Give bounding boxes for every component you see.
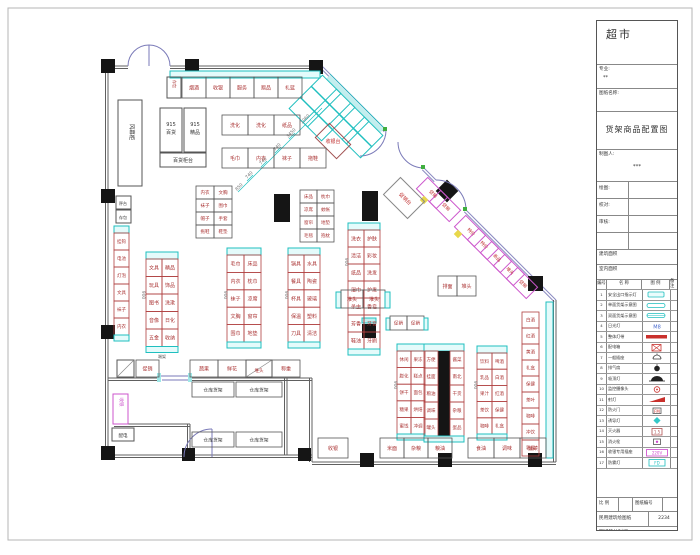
legend-row-name: 防火门	[607, 406, 643, 416]
shelf-cap	[385, 292, 390, 308]
plan-label: 百货	[166, 129, 176, 136]
shelf-label: 冲调	[414, 422, 423, 429]
std-value: 2234	[649, 512, 677, 526]
column	[274, 194, 290, 222]
dim-text: 900	[472, 381, 478, 390]
shelf-label: 食油	[476, 445, 486, 452]
legend-row-symbol	[643, 416, 671, 426]
legend-row-name: 射灯	[607, 395, 643, 405]
legend-row-note	[671, 332, 677, 342]
shelf-label: 南北	[453, 373, 462, 380]
dim-text: 1060	[299, 113, 311, 125]
legend-row-name: 排气扇	[607, 364, 643, 374]
shelf-label: 手套	[219, 215, 228, 222]
svg-text:FD: FD	[654, 461, 659, 466]
shelf-label: 糕点	[414, 373, 423, 380]
column	[101, 446, 115, 460]
shelf-label: 休闲	[400, 356, 409, 363]
major-row: 专业: **	[597, 64, 677, 88]
svg-text:1.5: 1.5	[653, 429, 660, 434]
legend-row: 9吸顶灯	[597, 373, 677, 384]
shelf-label: 仓库货架	[203, 386, 222, 393]
shelf-label: 促销	[394, 320, 403, 327]
shelf-label: 红酒	[526, 333, 535, 340]
legend-row-name: 诱导灯	[607, 416, 643, 426]
door-arc	[128, 45, 149, 66]
legend-row: 15消火栓	[597, 436, 677, 447]
shelf-label: 堆头	[347, 296, 357, 303]
shelf-label: 白酒	[526, 317, 535, 324]
plan-label: 秤台	[119, 200, 127, 206]
shelf-label: 清洁	[351, 252, 361, 259]
shelf-label: 米面	[387, 445, 397, 452]
legend-symbol-ext-icon: 1.5	[644, 427, 670, 436]
legend-symbol-diamond-icon	[644, 416, 670, 425]
shelf-label: 玩具	[149, 283, 159, 289]
shelf-label: 烟酒	[189, 84, 199, 91]
legend-row-no: 2	[597, 301, 607, 311]
shelf-cap	[424, 436, 464, 442]
shelf-label: 饼干	[400, 389, 409, 396]
legend-row-note	[671, 301, 677, 311]
legend-row: 11射灯	[597, 394, 677, 405]
shelf-label: 洗衣	[351, 235, 361, 242]
shelf-label: 黄酒	[526, 349, 535, 356]
shelf-label: 洗发	[367, 269, 377, 276]
legend-row-note	[671, 427, 677, 437]
door-arc	[360, 130, 386, 156]
column	[360, 453, 374, 467]
shelf-label: 洗化	[256, 122, 266, 129]
plan-label: 存包	[119, 214, 127, 220]
legend-row-symbol	[643, 301, 671, 311]
shelf-label: 礼盒	[495, 423, 504, 430]
legend-row-no: 1	[597, 290, 607, 300]
sign-label: 绘图:	[599, 186, 610, 191]
drafter-label: 制图人:	[599, 152, 614, 157]
shelf-label: 窗帘	[304, 219, 313, 226]
shelf-label: 收纳	[165, 335, 175, 342]
plan-label: 百货柜台	[173, 157, 193, 164]
shelf-label: 塑料	[307, 313, 317, 320]
dim-text: 900	[392, 381, 398, 390]
dim-line	[238, 108, 322, 192]
plan-label: 堆头	[255, 367, 264, 374]
shelf-cap	[424, 318, 428, 330]
shelf-label: 纸品	[351, 269, 361, 276]
area-row: 建筑面积	[597, 249, 677, 264]
shelf-label: 白酒	[495, 374, 504, 381]
shelf-label: 果冻	[414, 356, 423, 363]
shelf-cap	[227, 248, 261, 255]
shelf-label: 凉席	[304, 206, 313, 213]
shelf-label: 烘焙	[414, 406, 423, 413]
legend-row-note	[671, 406, 677, 416]
legend-row-symbol: FM	[643, 406, 671, 416]
shelf-label: 灯泡	[117, 272, 126, 279]
legend-row-no: 11	[597, 395, 607, 405]
shelf-label: 蚊帐	[321, 206, 330, 213]
shelf-label: 称重	[281, 365, 291, 372]
shelf-label: 拖鞋	[201, 228, 210, 235]
shelf-cap	[477, 346, 507, 353]
shelf-label: 酱菜	[453, 356, 462, 363]
shelf-label: 餐具	[291, 278, 301, 285]
legend-row: 7一般插座	[597, 352, 677, 363]
shelf-label: 床品	[304, 193, 313, 200]
legend-row-note	[671, 437, 677, 447]
shelf-label: 咖啡	[480, 423, 489, 430]
legend-symbol-shelf2-icon	[644, 311, 670, 320]
legend-row: 8排气扇	[597, 363, 677, 374]
shelf-label: 内衣	[117, 323, 126, 330]
legend-row: 3双面货架示意图	[597, 310, 677, 321]
column	[101, 59, 115, 73]
shelf-label: 饰品	[165, 282, 175, 289]
legend-row: 5整体灯带	[597, 331, 677, 342]
cooler-label: 风幕柜	[128, 124, 136, 141]
shelf-cap	[146, 347, 178, 353]
legend-row-no: 5	[597, 332, 607, 342]
cashier-label: 收银台	[325, 138, 340, 145]
plan-label: 915	[166, 122, 176, 128]
shelf-label: 枕巾	[321, 193, 330, 200]
column-diamond	[436, 180, 459, 203]
yellow-mark	[454, 230, 462, 238]
sign-label: 校对:	[599, 203, 610, 208]
legend-row-name: 双面货架示意图	[607, 311, 643, 321]
legend-row-note	[671, 395, 677, 405]
legend-row-name: 单面货架示意图	[607, 301, 643, 311]
shelf-cap	[397, 344, 425, 351]
shelf-label: 收银	[328, 445, 338, 452]
legend-symbol-fan-icon	[644, 364, 670, 373]
plan-label: 915	[190, 122, 200, 128]
legend-symbol-shelf1-icon	[644, 301, 670, 310]
legend-row-symbol	[643, 385, 671, 395]
std-label: 民用建筑绘图纸	[597, 512, 649, 526]
shelf-label: 文具	[149, 265, 159, 272]
plan-label: 端架	[158, 353, 166, 359]
legend-row-symbol	[643, 374, 671, 384]
shelf-label: 促销	[142, 365, 152, 372]
promo-island-label: 促销台	[397, 191, 413, 207]
shelf-label: 酱菜	[528, 445, 538, 452]
legend-row-symbol	[643, 395, 671, 405]
shelf-label: 服务	[237, 84, 247, 91]
legend-row-no: 10	[597, 385, 607, 395]
shelf-label: 罐头	[427, 424, 436, 431]
shelf-label: 地垫	[247, 330, 257, 337]
shelf-label: 咖啡	[526, 413, 535, 420]
shelf-label: 礼盒	[526, 365, 535, 372]
legend-row-symbol	[643, 290, 671, 300]
legend-row-symbol: 1.5	[643, 427, 671, 437]
legend-row-name: 吸顶灯	[607, 374, 643, 384]
shelf-label: 护肤	[367, 235, 377, 242]
legend-row-symbol	[643, 332, 671, 342]
legend-row-note	[671, 353, 677, 363]
green-mark	[383, 127, 387, 131]
scale-label: 比 例	[597, 498, 619, 511]
shelf-label: 堆头	[461, 283, 471, 290]
shelf-label: 果汁	[480, 390, 489, 397]
column	[528, 453, 542, 467]
shelf-label: 香皂	[367, 303, 377, 310]
shelf-label: 袜子	[282, 155, 292, 162]
legend-header-name: 名 称	[607, 280, 642, 289]
shelf-label: 膨化	[400, 373, 409, 380]
shelf-label: 床品	[247, 261, 257, 268]
plan-label: 精品	[190, 129, 200, 136]
shelf-label: 帽子	[201, 215, 210, 222]
shelf-label: 牙膏	[367, 320, 377, 327]
legend-row: 12防火门FM	[597, 405, 677, 416]
shelf-cap	[386, 318, 390, 330]
door-arc	[398, 142, 424, 168]
shelf-label: 保健	[495, 406, 504, 413]
shelf-label: 杀虫	[351, 303, 361, 310]
store-title: 超市	[606, 29, 632, 64]
legend-row: 10监控摄像头	[597, 384, 677, 395]
shelf-label: 挂面	[427, 373, 436, 380]
legend-symbol-dome-icon	[644, 374, 670, 383]
shelf-label: 乳品	[480, 374, 489, 381]
shelf-label: 袜子	[201, 202, 210, 209]
shelf-label: 音像	[149, 317, 159, 324]
shelf-label: 仓库货架	[203, 436, 222, 443]
legend-symbol-fog-icon: FD	[644, 458, 670, 467]
drafter-value: ***	[597, 164, 677, 170]
shelf-label: 洗漱	[165, 300, 175, 307]
sign-row: 校对:	[597, 198, 677, 215]
shelf-cap	[227, 342, 261, 348]
shelf-cap	[114, 335, 129, 341]
shelf-cap	[424, 344, 464, 351]
shelf-label: 茶饮	[480, 406, 489, 413]
shelf-label: 杯具	[291, 295, 301, 302]
shelf-label: 保温	[291, 313, 301, 320]
legend-row-symbol	[643, 311, 671, 321]
shelf-label: 文胸	[219, 189, 228, 196]
legend-symbol-strip-icon	[644, 332, 670, 341]
plan-label: 配电	[119, 432, 128, 439]
shelf-label: 拖鞋	[308, 155, 318, 162]
shelf-label: 窗帘	[247, 313, 257, 320]
confirm-row-1: 图纸确认时间	[597, 526, 677, 532]
shelf-label: 调味	[427, 407, 436, 414]
shelf-label: 杂粮	[453, 407, 462, 414]
shelf-label: 围巾	[219, 202, 228, 209]
shelf-label: 彩妆	[367, 252, 377, 259]
shelf-cap	[397, 434, 425, 440]
plan-label: 收银	[118, 398, 125, 407]
legend-row: 13诱导灯	[597, 415, 677, 426]
shelf-label: 精品	[165, 265, 175, 272]
std-row: 民用建筑绘图纸 2234	[597, 511, 677, 526]
shelf-label: 毛巾	[230, 155, 240, 162]
legend-empty-rows	[597, 468, 677, 497]
legend-row-no: 8	[597, 364, 607, 374]
shelf-label: 芳香	[351, 320, 361, 327]
legend-table: 1安全出口指示灯2单面货架示意图3双面货架示意图4日光灯M85整体灯带6配电箱7…	[597, 289, 677, 468]
shelf-core	[438, 351, 450, 436]
column	[101, 325, 115, 339]
shelf-label: 仓库货架	[249, 436, 268, 443]
legend-row-no: 4	[597, 322, 607, 332]
legend-symbol-panel-icon	[644, 343, 670, 352]
legend-row-name: 消火栓	[607, 437, 643, 447]
legend-row-symbol	[643, 364, 671, 374]
shelf-label: 赠品	[261, 84, 271, 91]
shelf-label: 蛋品	[453, 424, 462, 431]
legend-row-symbol	[643, 353, 671, 363]
dim-text: 850	[234, 182, 244, 192]
shelf-label: 调味	[502, 445, 512, 452]
shelf-cap	[348, 223, 380, 230]
shelf-label: 地垫	[321, 219, 330, 226]
legend-row: 4日光灯M8	[597, 321, 677, 332]
shelf-label: 鲜花	[227, 365, 237, 372]
legend-row-note	[671, 416, 677, 426]
shelf-label: 啤酒	[495, 358, 504, 365]
shelf-cap	[114, 226, 129, 233]
legend-symbol-socket-icon	[644, 353, 670, 362]
drafter-row: 制图人: ***	[597, 149, 677, 181]
dim-text: 900	[283, 291, 289, 300]
legend-row-no: 6	[597, 343, 607, 353]
legend-row-note	[671, 364, 677, 374]
shelf-label: 文具	[117, 289, 126, 296]
shelf-label: 刀具	[291, 331, 301, 337]
legend-row-symbol: 220V	[643, 448, 671, 458]
title-block-header: 超市	[597, 21, 677, 64]
legend-symbol-m8-icon: M8	[644, 322, 670, 331]
legend-row-note	[671, 343, 677, 353]
legend-header-sym: 图 例	[642, 280, 670, 289]
shelf-label: 堆头	[369, 296, 379, 303]
shelf-label: 鞋油	[351, 337, 361, 344]
dim-text: 900	[222, 291, 228, 300]
legend-row-note	[671, 458, 677, 468]
legend-symbol-csocket-icon: 220V	[644, 448, 670, 457]
shelf-label: 排面	[442, 283, 452, 290]
drawing-name: 货架商品配置图	[597, 111, 677, 149]
legend-row-note	[671, 290, 677, 300]
legend-row-name: 日光灯	[607, 322, 643, 332]
shelf-label: 电池	[117, 255, 126, 262]
shelf-label: 粮油	[427, 390, 436, 397]
dim-text: 900	[140, 291, 146, 300]
legend-row: 17防雾灯FD	[597, 457, 677, 468]
green-mark	[463, 207, 467, 211]
shelf-label: 红酒	[495, 390, 504, 397]
shelf-label: 抱枕	[321, 232, 330, 239]
door-arc	[149, 45, 170, 66]
svg-text:M8: M8	[653, 324, 661, 330]
drawing-name-label-row: 图纸名称:	[597, 88, 677, 111]
shelf-label: 洗化	[230, 122, 240, 129]
drawing-name-label: 图纸名称:	[599, 91, 619, 96]
sheet-no-label: 图纸编号	[633, 498, 663, 511]
legend-row-name: 收银专用插座	[607, 448, 643, 458]
legend-row: 14灭火器1.5	[597, 426, 677, 437]
shelf-label: 水具	[307, 261, 317, 268]
shelf-label: 杂粮	[411, 445, 421, 452]
major-value: **	[603, 76, 608, 82]
shelf-label: 仓库货架	[249, 386, 268, 393]
shelf-label: 凉席	[247, 295, 257, 302]
green-mark	[421, 165, 425, 169]
shelf-label: 鞋垫	[219, 228, 228, 235]
scale-row: 比 例 图纸编号	[597, 497, 677, 511]
area1-label: 建筑面积	[599, 252, 617, 257]
shelf-label: 糖果	[400, 406, 409, 413]
legend-symbol-spot-icon	[644, 395, 670, 404]
area2-label: 室内面积	[599, 267, 617, 272]
sign-label: 审核:	[599, 220, 610, 225]
legend-row-no: 12	[597, 406, 607, 416]
legend-row-no: 7	[597, 353, 607, 363]
shelf-label: 陶瓷	[307, 278, 317, 285]
shelf-label: 玻璃	[307, 295, 317, 302]
legend-row-name: 一般插座	[607, 353, 643, 363]
legend-row-no: 15	[597, 437, 607, 447]
shelf-label: 日化	[165, 317, 175, 324]
shelf-label: 袜子	[117, 306, 126, 313]
wall-shelf-band	[546, 302, 553, 458]
shelf-label: 粮油	[435, 445, 445, 452]
legend-row: 1安全出口指示灯	[597, 289, 677, 300]
legend-row-name: 灭火器	[607, 427, 643, 437]
shelf-label: 毛巾	[230, 261, 240, 268]
shelf-label: 内衣	[230, 278, 240, 285]
wall-line	[117, 360, 134, 377]
service-label: 存包	[172, 80, 178, 88]
legend-row-note	[671, 448, 677, 458]
dim-text: 900	[343, 258, 349, 267]
legend-symbol-door-icon: FM	[644, 406, 670, 415]
legend-header-no: 编号	[597, 280, 607, 289]
shelf-cap	[477, 434, 507, 440]
legend-row-no: 13	[597, 416, 607, 426]
legend-row: 16收银专用插座220V	[597, 447, 677, 458]
sheet-no-value	[663, 498, 677, 511]
sign-row	[597, 232, 677, 249]
legend-row-no: 9	[597, 374, 607, 384]
shelf-label: 冲饮	[526, 429, 535, 436]
shelf-label: 文胸	[230, 313, 240, 320]
legend-row-symbol	[643, 437, 671, 447]
shelf-label: 饮料	[480, 358, 489, 365]
shelf-label: 图书	[149, 300, 159, 307]
dim-text: 740	[244, 170, 254, 180]
legend-row-name: 防雾灯	[607, 458, 643, 468]
legend-row-note	[671, 322, 677, 332]
svg-text:220V: 220V	[651, 450, 662, 455]
column	[438, 453, 452, 467]
svg-text:FM: FM	[654, 409, 660, 414]
legend-row-name: 监控摄像头	[607, 385, 643, 395]
floorplan-svg: 收银台74074074034501060850促销促销特价特价新品堆头促销促销台…	[0, 0, 700, 555]
sign-row: 绘图:	[597, 181, 677, 198]
area-row: 室内面积	[597, 264, 677, 279]
shelf-label: 面包	[414, 389, 423, 396]
column	[362, 191, 378, 221]
legend-row: 6配电箱	[597, 342, 677, 353]
legend-row-note	[671, 385, 677, 395]
shelf-label: 收银	[213, 84, 223, 91]
